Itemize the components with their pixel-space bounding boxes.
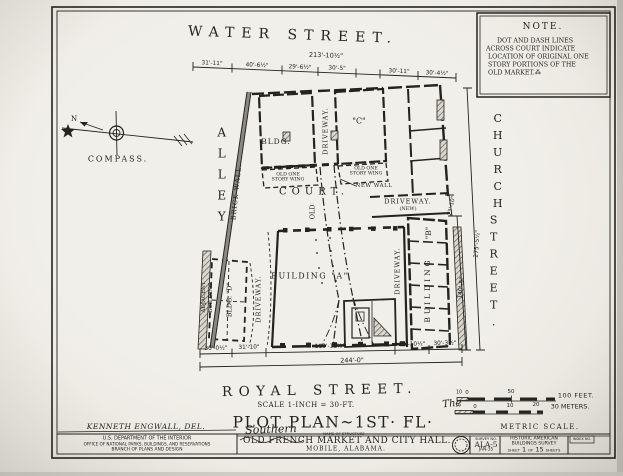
driveway-north-label: DRIVEWAY.: [322, 107, 329, 154]
structure-location: MOBILE, ALABAMA.: [306, 446, 386, 453]
dim-top-overall: 213'-10½": [309, 52, 343, 60]
habs-drawing-sheet: NOTE. DOT AND DASH LINES ACROSS COURT IN…: [0, 0, 623, 476]
handwritten-southern: Southern: [245, 423, 297, 437]
dim-top-1: 31'-11": [201, 60, 222, 67]
metric-scale-30: 30 METERS.: [551, 403, 590, 410]
delineator-signature: KENNETH ENGWALL, DEL.: [87, 423, 205, 431]
handwritten-the: The: [442, 397, 462, 410]
sheet-number: 1: [522, 446, 526, 453]
dim-top-2: 40'-6½": [245, 62, 268, 69]
compass-label: COMPASS.: [88, 156, 148, 165]
old-wing-right-line2: STORY WING: [350, 172, 383, 177]
dim-bottom-2: 31'-10": [238, 345, 259, 352]
sheet-of: OF: [528, 448, 533, 452]
building-b-letter-label: "B": [425, 227, 433, 239]
scale-bars: [455, 396, 556, 415]
metric-scale-label: METRIC SCALE.: [500, 424, 579, 432]
driveway-west-label: DRIVEWAY.: [255, 275, 262, 322]
old-driveway-label: OLD: [309, 205, 316, 220]
driveway-east-label: DRIVEWAY.: [394, 247, 401, 294]
building-b-word-label: BUILDING: [424, 257, 432, 322]
old-wing-left-label: OLD ONE STORY WING: [272, 173, 305, 184]
note-title: NOTE.: [523, 22, 564, 32]
sheet-word-2: SHEETS: [546, 448, 561, 452]
bldg-c-letter-label: "C": [352, 118, 365, 127]
compass-figure: [61, 111, 193, 155]
church-street-label-1: CHURCH: [491, 112, 503, 214]
bldg-c-word-label: BLDG.: [261, 138, 291, 146]
sheet-count-row: SHEET 1 OF 15 SHEETS: [508, 446, 561, 453]
dim-bottom-overall: 244'-0": [340, 357, 364, 365]
adjacent-building-label-2: BUILDING.: [208, 281, 214, 313]
dim-bottom-1: 30'-0½": [204, 346, 227, 353]
compass-north-label: N: [71, 116, 77, 124]
church-street-label-2: STREET.: [487, 214, 499, 333]
dim-bottom-4: 31'-10½": [399, 342, 426, 349]
alley-label: ALLEY: [214, 126, 227, 231]
dim-bottom-3: 119'-11½": [315, 343, 346, 350]
feet-scale-0: 0: [465, 390, 469, 396]
dim-top-6: 30'-4½": [425, 70, 448, 77]
court-label: COURT.: [279, 186, 349, 197]
dept-line-3: BRANCH OF PLANS AND DESIGN: [112, 448, 183, 453]
sheet-total: 15: [535, 446, 543, 453]
top-dimension-lines: [193, 62, 456, 82]
note-line-5: OLD MARKET.⁂: [488, 69, 541, 76]
new-wall-label: NEW WALL: [356, 183, 393, 189]
note-line-4: STORY PORTIONS OF THE: [488, 61, 576, 68]
old-wing-left-line2: STORY WING: [272, 178, 305, 183]
index-no-caption: INDEX NO.: [573, 438, 591, 442]
note-line-2: ACROSS COURT INDICATE: [486, 45, 575, 52]
note-line-3: LOCATION OF ORIGINAL ONE: [488, 53, 589, 60]
dim-top-3: 29'-6½": [288, 64, 311, 71]
driveway-new-word-label: DRIVEWAY.: [384, 198, 431, 205]
dim-bottom-5: 30'-3½": [433, 341, 456, 348]
feet-scale-50: 50: [508, 389, 515, 395]
royal-scale-note: SCALE 1-INCH = 30-FT.: [257, 402, 354, 410]
metric-scale-0: 0: [473, 404, 477, 410]
sheet-word: SHEET: [508, 448, 520, 452]
bldg-d-label: BLDG. "D": [226, 283, 233, 318]
building-a-walls: [272, 226, 407, 348]
feet-scale-10: 10: [456, 390, 462, 395]
driveway-new-tag-label: (NEW): [399, 207, 416, 213]
note-line-1: DOT AND DASH LINES: [497, 37, 573, 44]
dim-top-5: 30'-11": [388, 68, 409, 75]
metric-scale-10: 10: [507, 403, 514, 409]
metric-scale-20: 20: [533, 402, 540, 408]
old-wing-right-label: OLD ONE STORY WING: [350, 167, 383, 178]
survey-date: JAN-35: [479, 449, 493, 454]
building-a-label: BUILDING "A": [271, 273, 349, 282]
feet-scale-100: 100 FEET.: [558, 392, 594, 399]
adjacent-building-label-1: ADJACENT: [201, 281, 207, 312]
dim-top-4: 30'-5": [328, 65, 346, 72]
